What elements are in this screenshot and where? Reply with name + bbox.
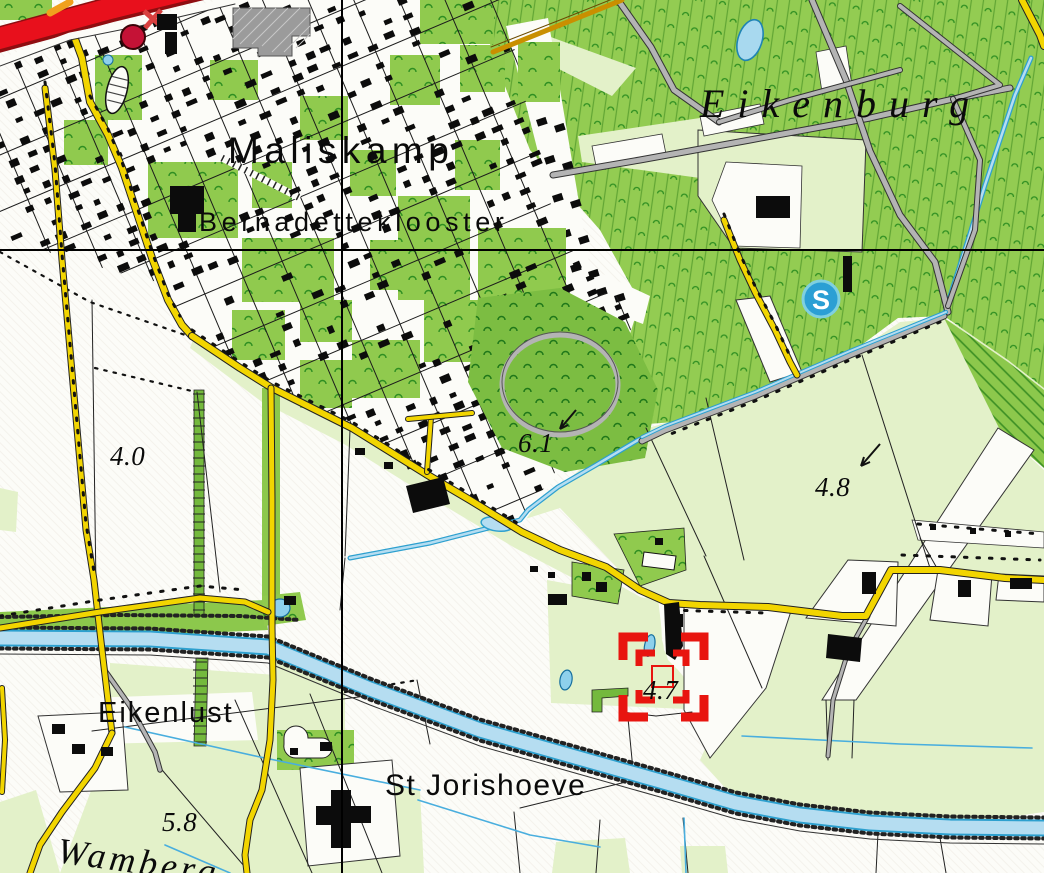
svg-text:S: S	[812, 285, 830, 315]
svg-text:St Jorishoeve: St Jorishoeve	[385, 769, 586, 802]
svg-text:4.0: 4.0	[110, 441, 145, 471]
svg-text:Bernadetteklooster: Bernadetteklooster	[199, 207, 508, 237]
svg-text:4.8: 4.8	[815, 472, 850, 502]
svg-text:Eikenlust: Eikenlust	[98, 697, 234, 729]
svg-text:5.8: 5.8	[162, 807, 197, 837]
svg-text:Maliskamp: Maliskamp	[228, 130, 454, 171]
svg-text:Eikenburg: Eikenburg	[699, 81, 982, 126]
svg-text:4.7: 4.7	[643, 675, 679, 705]
svg-text:6.1: 6.1	[518, 428, 553, 458]
